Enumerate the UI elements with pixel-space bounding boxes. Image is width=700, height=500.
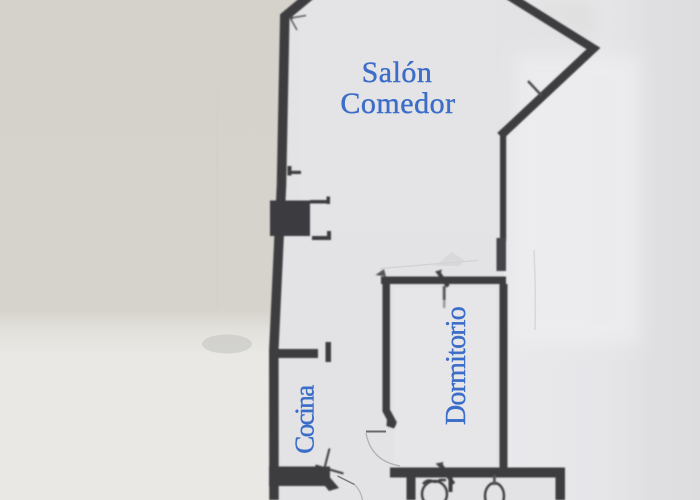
- svg-text:Salón: Salón: [362, 56, 433, 89]
- svg-text:Dormitorio: Dormitorio: [441, 307, 472, 425]
- svg-text:Cocina: Cocina: [290, 385, 320, 454]
- svg-text:Comedor: Comedor: [340, 87, 455, 120]
